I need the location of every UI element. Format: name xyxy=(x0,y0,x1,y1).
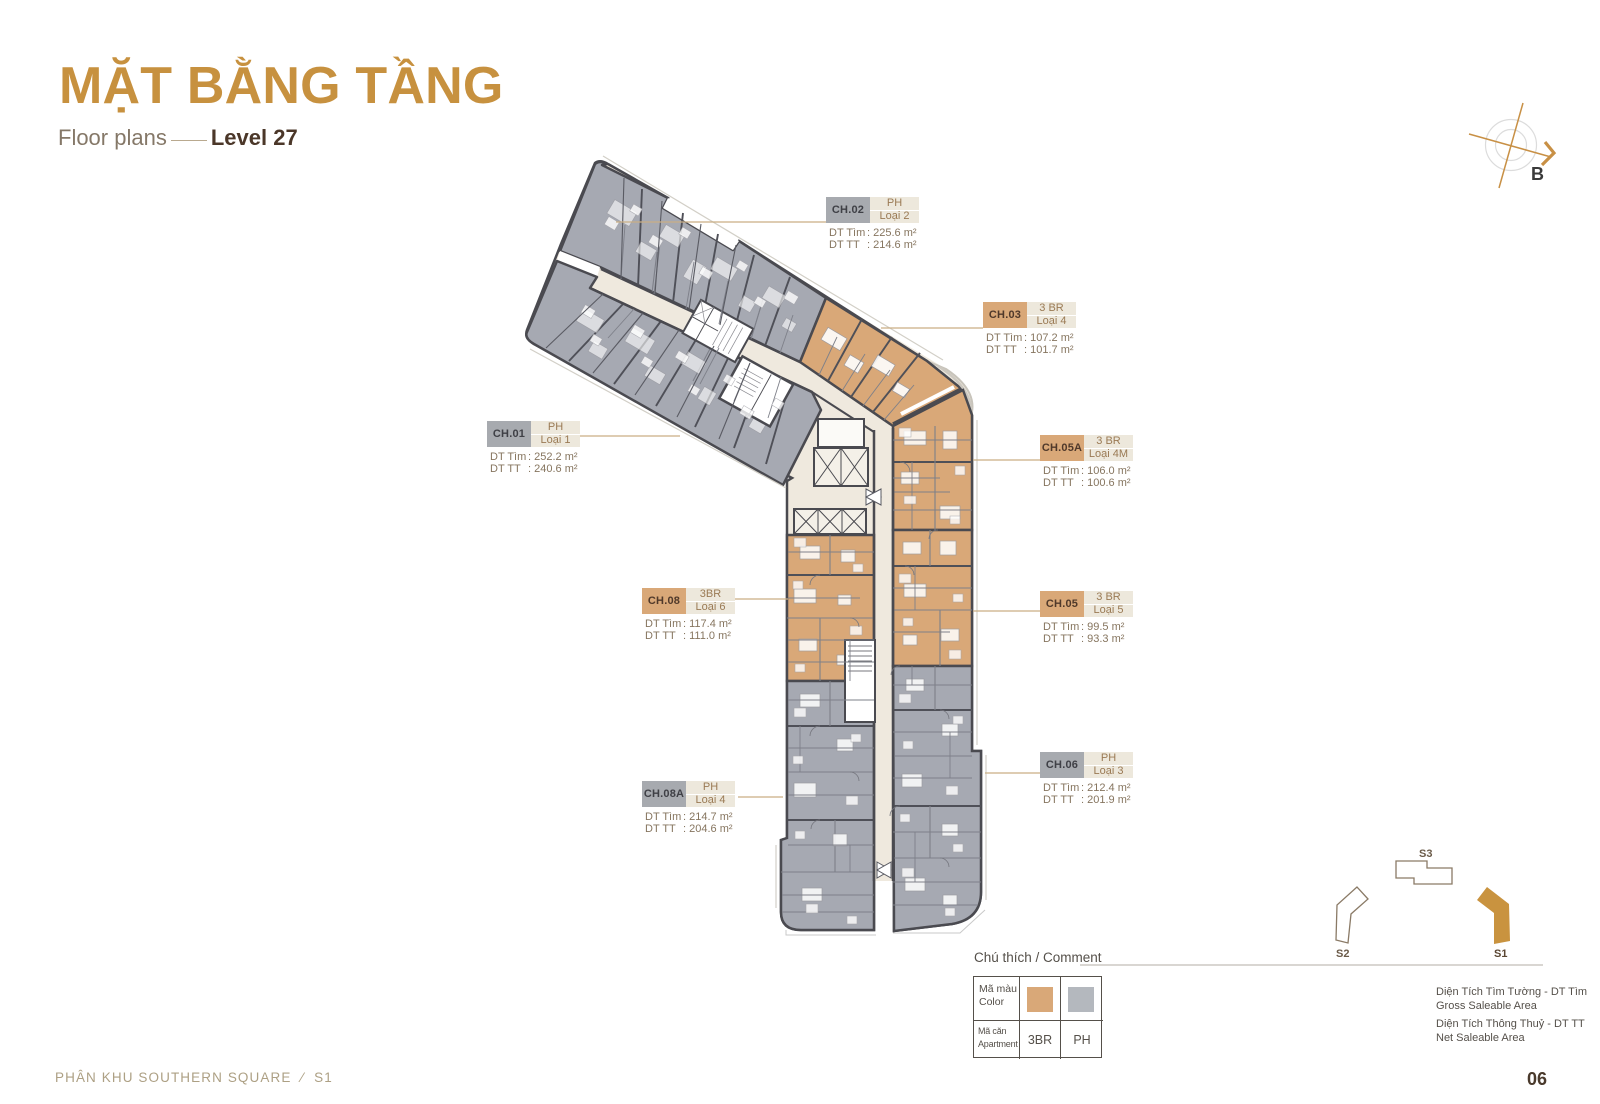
svg-text:S1: S1 xyxy=(1494,948,1507,960)
svg-text:S2: S2 xyxy=(1336,948,1349,960)
svg-text:B: B xyxy=(1531,164,1544,184)
svg-text:S3: S3 xyxy=(1419,848,1432,860)
